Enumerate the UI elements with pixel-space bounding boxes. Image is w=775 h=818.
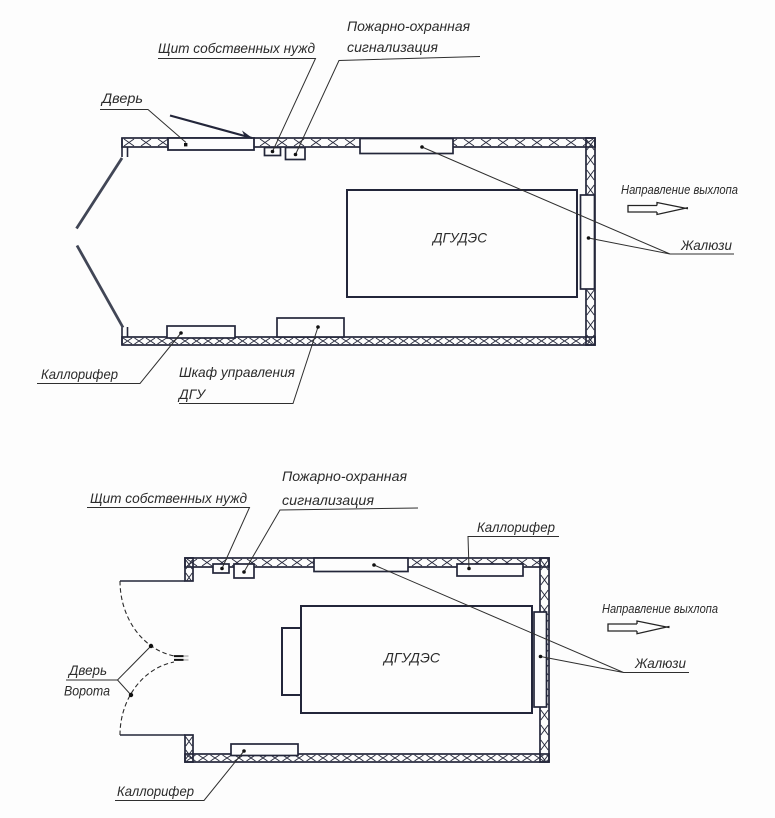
svg-text:сигнализация: сигнализация: [282, 492, 375, 508]
svg-text:Каллорифер: Каллорифер: [41, 366, 118, 382]
svg-text:ДГУДЭС: ДГУДЭС: [431, 230, 488, 246]
svg-text:Пожарно-охранная: Пожарно-охранная: [347, 18, 471, 34]
svg-text:Каллорифер: Каллорифер: [117, 783, 194, 799]
svg-text:Направление выхлопа: Направление выхлопа: [621, 182, 738, 197]
svg-text:Жалюзи: Жалюзи: [680, 237, 732, 253]
svg-text:Пожарно-охранная: Пожарно-охранная: [282, 468, 408, 484]
svg-text:сигнализация: сигнализация: [347, 39, 439, 55]
svg-text:Дверь: Дверь: [100, 90, 143, 106]
svg-text:Щит собственных нужд: Щит собственных нужд: [90, 490, 247, 506]
svg-text:Каллорифер: Каллорифер: [477, 519, 555, 535]
svg-text:ДГУДЭС: ДГУДЭС: [382, 650, 441, 666]
svg-text:Направление выхлопа: Направление выхлопа: [602, 601, 718, 616]
svg-text:Шкаф управления: Шкаф управления: [179, 364, 296, 380]
svg-text:Жалюзи: Жалюзи: [634, 655, 686, 671]
svg-text:Ворота: Ворота: [64, 683, 110, 699]
svg-text:Щит собственных нужд: Щит собственных нужд: [158, 40, 315, 56]
svg-text:ДГУ: ДГУ: [177, 386, 207, 402]
svg-text:Дверь: Дверь: [67, 662, 107, 678]
